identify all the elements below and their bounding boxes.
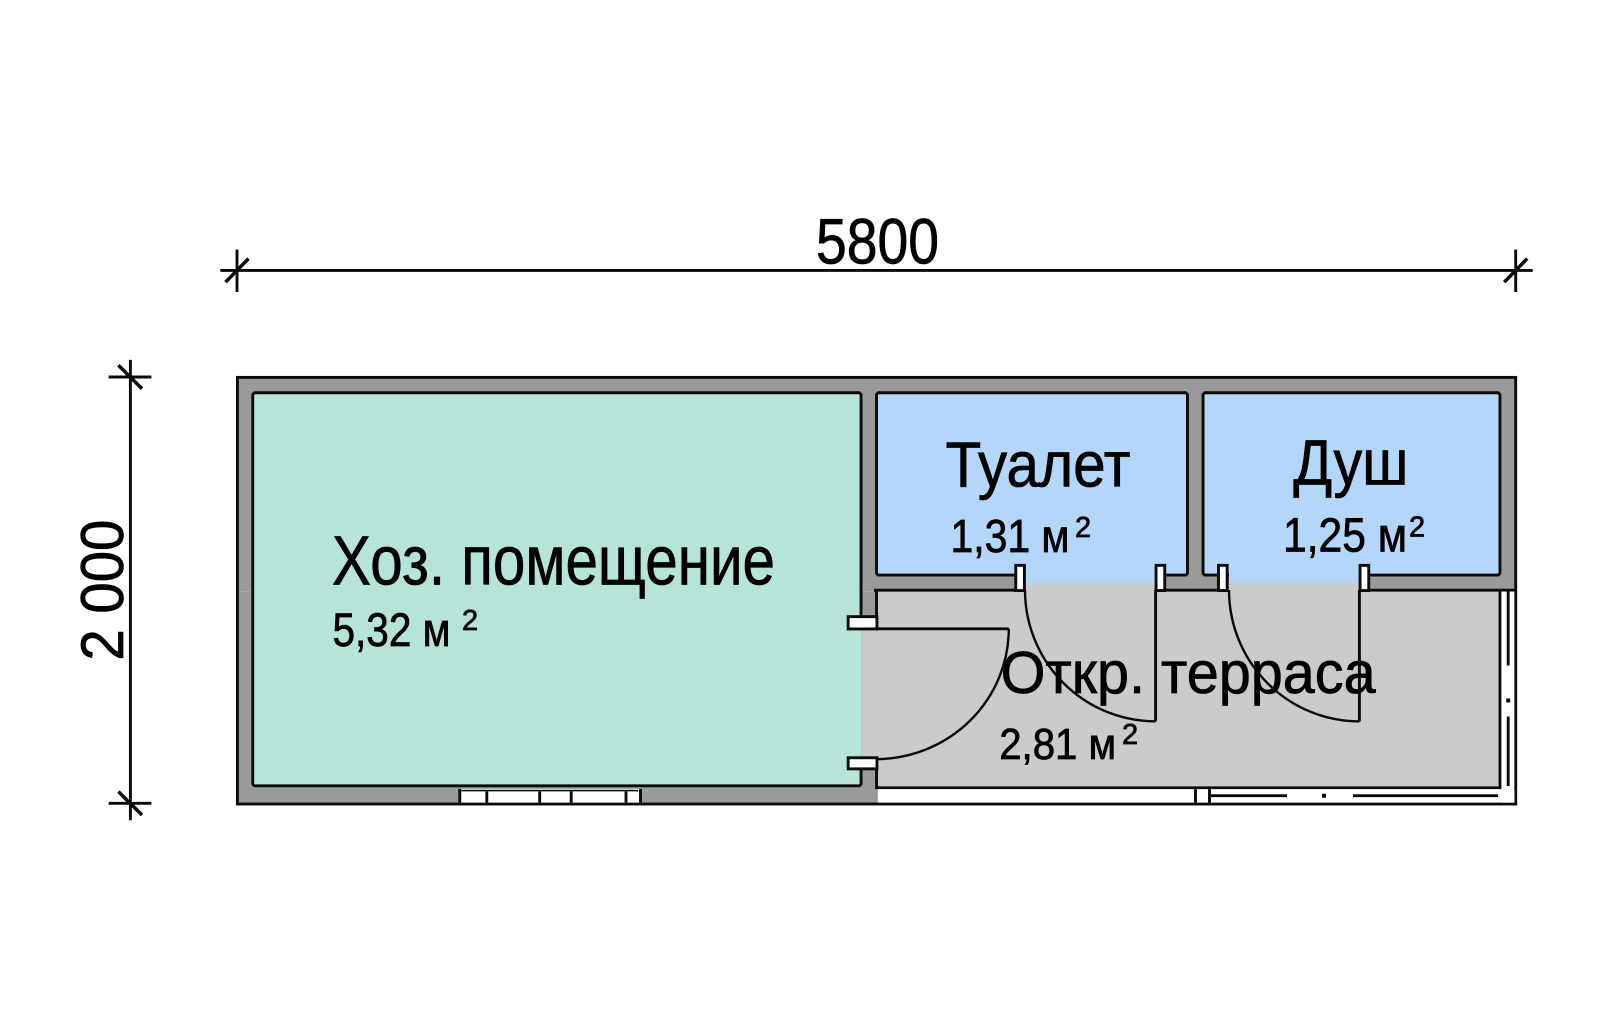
svg-text:2 000: 2 000 xyxy=(69,520,136,661)
svg-text:2: 2 xyxy=(1122,719,1138,751)
svg-text:2: 2 xyxy=(462,605,478,637)
svg-text:Хоз. помещение: Хоз. помещение xyxy=(332,522,775,600)
svg-text:5800: 5800 xyxy=(816,206,939,278)
svg-text:Туалет: Туалет xyxy=(946,428,1131,500)
svg-text:5,32 м: 5,32 м xyxy=(333,604,451,657)
svg-text:1,31 м: 1,31 м xyxy=(951,510,1070,562)
svg-text:2,81 м: 2,81 м xyxy=(999,720,1116,769)
svg-text:Душ: Душ xyxy=(1293,427,1408,499)
svg-text:Откр. терраса: Откр. терраса xyxy=(1001,640,1376,706)
svg-text:2: 2 xyxy=(1075,512,1091,544)
svg-text:2: 2 xyxy=(1409,512,1425,544)
svg-text:1,25 м: 1,25 м xyxy=(1283,510,1407,563)
